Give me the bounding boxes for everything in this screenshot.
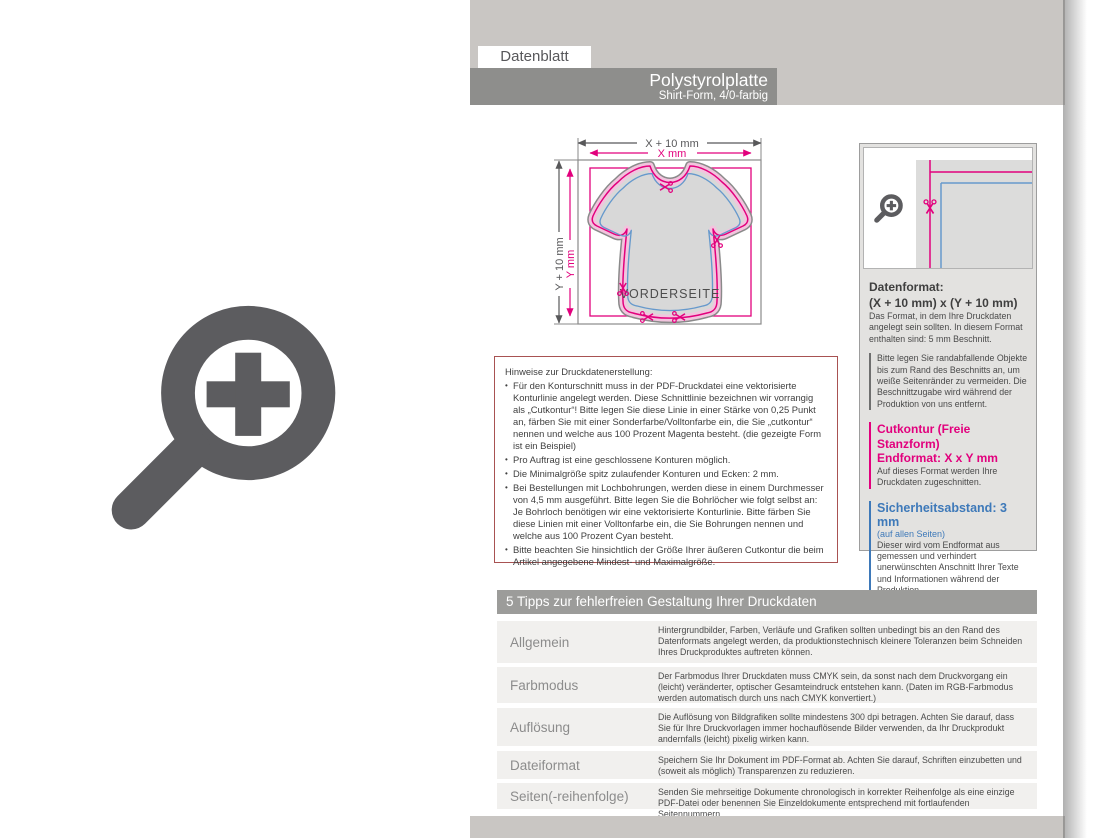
front-side-label: VORDERSEITE (620, 287, 721, 301)
page-title: Polystyrolplatte (470, 70, 768, 90)
dimension-height-outer: Y + 10 mm (554, 161, 566, 323)
tip-text: Hintergrundbilder, Farben, Verläufe und … (658, 621, 1037, 663)
tip-text: Senden Sie mehrseitige Dokumente chronol… (658, 783, 1037, 809)
dimension-width-inner: X mm (590, 148, 751, 160)
corner-zoom-preview (863, 147, 1033, 269)
cutkontur-desc: Auf dieses Format werden Ihre Druckdaten… (877, 466, 1029, 489)
footer-band (470, 816, 1065, 838)
safety-title: Sicherheitsabstand: 3 mm (877, 501, 1029, 529)
bleed-note: Bitte legen Sie randabfallende Objekte b… (869, 353, 1029, 410)
zoom-in-icon[interactable] (100, 288, 360, 550)
cutkontur-block: Cutkontur (Freie Stanzform) Endformat: X… (869, 422, 1029, 488)
document-page: Datenblatt Polystyrolplatte Shirt-Form, … (470, 0, 1065, 838)
format-info-panel: Datenformat: (X + 10 mm) x (Y + 10 mm) D… (859, 143, 1037, 551)
magnifier-handle (131, 450, 191, 510)
print-data-notes-box: Hinweise zur Druckdatenerstellung: Für d… (494, 356, 838, 563)
datenformat-desc: Das Format, in dem Ihre Druckdaten angel… (869, 311, 1029, 345)
note-item: Die Minimalgröße spitz zulaufender Kontu… (505, 468, 827, 480)
page-subtitle: Shirt-Form, 4/0-farbig (470, 90, 768, 103)
cutkontur-value: Endformat: X x Y mm (877, 451, 1029, 466)
datasheet-page: Datenblatt Polystyrolplatte Shirt-Form, … (0, 0, 1117, 838)
safety-note: (auf allen Seiten) (877, 529, 1029, 539)
panel-text: Datenformat: (X + 10 mm) x (Y + 10 mm) D… (860, 274, 1038, 597)
tip-text: Speichern Sie Ihr Dokument im PDF-Format… (658, 751, 1037, 779)
tip-text: Die Auflösung von Bildgrafiken sollte mi… (658, 708, 1037, 746)
datenformat-title: Datenformat: (869, 280, 1029, 294)
tip-row: Seiten(-reihenfolge) Senden Sie mehrseit… (497, 783, 1037, 809)
datenblatt-tab: Datenblatt (478, 46, 591, 68)
title-bar: Polystyrolplatte Shirt-Form, 4/0-farbig (470, 68, 777, 105)
tip-row: Farbmodus Der Farbmodus Ihrer Druckdaten… (497, 667, 1037, 703)
safety-desc: Dieser wird vom Endformat aus gemessen u… (877, 540, 1029, 597)
note-item: Pro Auftrag ist eine geschlossene Kontur… (505, 454, 827, 466)
safety-block: Sicherheitsabstand: 3 mm (auf allen Seit… (869, 501, 1029, 597)
tip-label: Seiten(-reihenfolge) (497, 783, 658, 809)
plus-vertical (235, 353, 261, 436)
dim-label-y: Y mm (565, 250, 577, 279)
tip-row: Allgemein Hintergrundbilder, Farben, Ver… (497, 621, 1037, 663)
tip-label: Dateiformat (497, 751, 658, 779)
dimension-height-inner: Y mm (565, 169, 577, 316)
tip-text: Der Farbmodus Ihrer Druckdaten muss CMYK… (658, 667, 1037, 703)
datenformat-value: (X + 10 mm) x (Y + 10 mm) (869, 296, 1029, 310)
notes-title: Hinweise zur Druckdatenerstellung: (505, 366, 827, 378)
tip-label: Auflösung (497, 708, 658, 746)
note-item: Für den Konturschnitt muss in der PDF-Dr… (505, 380, 827, 452)
preview-paper-area (916, 160, 1032, 268)
magnifier-plus-icon (877, 196, 901, 220)
shirt-diagram: X + 10 mm X mm Y + 10 mm Y mm (545, 128, 835, 343)
tip-label: Farbmodus (497, 667, 658, 703)
note-item: Bitte beachten Sie hinsichtlich der Größ… (505, 544, 827, 568)
notes-list: Für den Konturschnitt muss in der PDF-Dr… (505, 380, 827, 568)
note-item: Bei Bestellungen mit Lochbohrungen, werd… (505, 482, 827, 542)
cutkontur-title: Cutkontur (Freie Stanzform) (877, 422, 1029, 451)
tip-row: Auflösung Die Auflösung von Bildgrafiken… (497, 708, 1037, 746)
page-edge-shadow (1063, 0, 1087, 838)
tip-label: Allgemein (497, 621, 658, 663)
tips-header: 5 Tipps zur fehlerfreien Gestaltung Ihre… (497, 590, 1037, 614)
dim-label-x: X mm (658, 148, 687, 160)
tip-row: Dateiformat Speichern Sie Ihr Dokument i… (497, 751, 1037, 779)
